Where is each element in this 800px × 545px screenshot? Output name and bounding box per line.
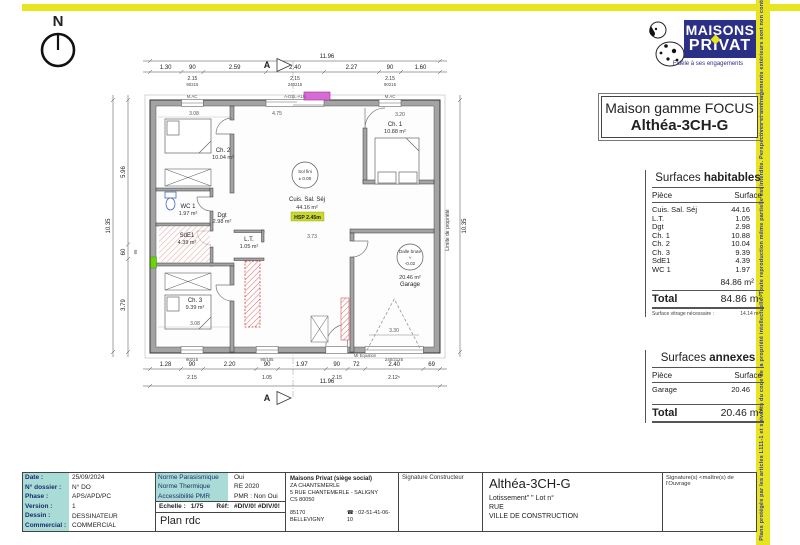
toilet-icon [165, 192, 176, 210]
annex-title: Surfaces annexes [652, 350, 764, 368]
info-row: Date :25/09/2024 [23, 473, 155, 483]
norm-row: Norme ThermiqueRE 2020 [156, 482, 285, 491]
signature-owner-cell: Signature(s) <maître(s) de l'Ouvrage [663, 473, 756, 531]
project-street: RUE [489, 503, 656, 512]
room-cuis-name: Cuis. Sal. Séj [289, 197, 325, 203]
svg-text:2.12⁵: 2.12⁵ [388, 375, 400, 381]
entry-cupboard [311, 316, 328, 342]
dim-bottom-total: 11.96 [320, 379, 335, 385]
svg-text:90215: 90215 [384, 82, 397, 87]
company-name: Maisons Privat (siège social) [290, 476, 394, 483]
room-lt-area: 1.05 m² [240, 244, 259, 250]
svg-text:69: 69 [428, 362, 435, 368]
room-sde1-area: 4.39 m² [178, 240, 197, 246]
north-compass: N [32, 10, 84, 74]
svg-text:1.97: 1.97 [296, 362, 308, 368]
technical-duct [341, 298, 349, 340]
svg-text:2.40: 2.40 [289, 65, 301, 71]
hab-total-row: Total 84.86 m² [652, 290, 764, 309]
svg-text:2.15: 2.15 [187, 375, 197, 381]
section-marker-bottom: A [264, 392, 291, 405]
bed-icon [165, 119, 211, 153]
svg-text:1.60: 1.60 [415, 65, 427, 71]
surfaces-annexes-table: Surfaces annexes PièceSurface Garage20.4… [645, 350, 764, 423]
info-row: Phase :APS/APD/PC [23, 492, 155, 502]
info-row: Dessin :DESSINATEUR [23, 511, 155, 521]
interior-dim: 3.08 [190, 321, 200, 327]
title-block: Date :25/09/2024 N° dossier :N° DO Phase… [22, 472, 757, 532]
svg-text:90: 90 [264, 362, 271, 368]
svg-text:-0.02: -0.02 [405, 261, 416, 266]
svg-text:A: A [264, 60, 271, 70]
room-dgt-area: 2.98 m² [213, 219, 232, 225]
logo-word-1: MAISONS [684, 22, 756, 38]
room-ch1-name: Ch. 1 [388, 122, 403, 128]
norm-row: Norme ParasismiqueOui [156, 473, 285, 482]
company-phone: ☎ : 02-51-41-06-10 [347, 510, 394, 524]
svg-text:Dalle brute: Dalle brute [399, 249, 422, 254]
interior-dim: 4.75 [272, 111, 282, 117]
hab-footnote: Surface vitrage nécessaire :14.14 m² [652, 309, 764, 317]
floor-plan-sheet: Plans protégés par les articles L111-1 e… [0, 0, 800, 545]
svg-text:Sol fini: Sol fini [298, 169, 312, 174]
hab-header: PièceSurface [652, 188, 764, 203]
room-garage-name: Garage [400, 282, 421, 288]
dim-top-total: 11.96 [320, 54, 335, 60]
interior-dim: 3.20 [395, 112, 405, 118]
wall-tag: M.AC [385, 94, 395, 99]
model-title-box: Maison gamme FOCUS Althéa-3CH-G [601, 96, 758, 138]
svg-text:1.28: 1.28 [160, 362, 172, 368]
company-addr: 5 RUE CHANTEMERLE - SALIGNY [290, 490, 394, 497]
annex-rows: Garage20.46 [652, 383, 764, 403]
svg-text:72: 72 [353, 362, 360, 368]
svg-text:240215: 240215 [288, 82, 303, 87]
room-ch1-area: 10.88 m² [384, 129, 406, 135]
svg-text:2.40: 2.40 [388, 362, 400, 368]
electrical-panel [151, 257, 157, 268]
svg-text:5.96: 5.96 [121, 166, 127, 178]
svg-text:1.30: 1.30 [160, 65, 172, 71]
svg-text:95: 95 [133, 249, 138, 254]
info-row: N° dossier :N° DO [23, 483, 155, 493]
slab-level-marker: Dalle brute ≈ -0.02 [397, 244, 423, 270]
svg-text:1.05: 1.05 [262, 375, 272, 381]
project-lot: Lotissement" " Lot n° [489, 494, 656, 503]
company-column: Maisons Privat (siège social) ZA CHANTEM… [286, 473, 399, 531]
signature-constructor-cell: Signature Constructeur [399, 473, 483, 531]
interior-dim: 3.08 [189, 111, 199, 117]
info-column: Date :25/09/2024 N° dossier :N° DO Phase… [23, 473, 156, 531]
svg-text:± 0.00: ± 0.00 [299, 176, 312, 181]
model-name: Althéa-3CH-G [602, 117, 757, 134]
section-marker-top: A [264, 59, 291, 72]
hab-title: Surfaces habitables [652, 170, 764, 188]
hab-rows: Cuis. Sal. Séj44.16 L.T.1.05 Dgt2.98 Ch.… [652, 203, 764, 274]
range-title: Maison gamme FOCUS [602, 100, 757, 116]
dim-left-total: 10.35 [106, 218, 112, 234]
room-wc1-name: WC 1 [181, 204, 197, 210]
svg-text:3.79: 3.79 [121, 299, 127, 311]
kitchen-counter [245, 261, 260, 327]
project-city: VILLE DE CONSTRUCTION [489, 512, 656, 521]
north-label: N [53, 13, 64, 30]
table-row: Garage20.46 [652, 386, 764, 395]
svg-text:A: A [264, 393, 271, 403]
room-wc1-area: 1.97 m² [179, 211, 198, 217]
dim-right-total: 10.35 [462, 218, 468, 234]
floor-plan-drawing: Ch. 2 10.04 m² WC 1 1.97 m² SdE1 4.39 m²… [95, 45, 515, 425]
company-addr: ZA CHANTEMERLE [290, 483, 394, 490]
dim-chain-left [111, 95, 130, 357]
plan-name: Plan rdc [156, 512, 285, 529]
info-row: Version :1 [23, 502, 155, 512]
interior-dim: 3.30 [389, 328, 399, 334]
svg-text:2.20: 2.20 [224, 362, 236, 368]
svg-text:90: 90 [189, 362, 196, 368]
table-row: WC 11.97 [652, 266, 764, 275]
svg-text:90: 90 [333, 362, 340, 368]
room-ch3-name: Ch. 3 [188, 298, 203, 304]
svg-text:90: 90 [189, 65, 196, 71]
hsp-label: HSP 2.45m [294, 215, 321, 221]
project-name: Althéa-3CH-G [489, 476, 656, 491]
company-city: 85170 BELLEVIGNY [290, 510, 339, 524]
company-addr: CS 80050 [290, 497, 394, 504]
room-ch3-area: 9.39 m² [186, 305, 205, 311]
project-column: Althéa-3CH-G Lotissement" " Lot n° RUE V… [483, 473, 663, 531]
logo-tagline: Fidèle à ses engagements [658, 61, 758, 67]
room-lt-name: L.T. [244, 237, 254, 243]
svg-text:90: 90 [387, 65, 394, 71]
svg-text:60: 60 [121, 248, 127, 255]
scale-row: Echelle :1/75 Réf:#DIV/0! #DIV/0! [156, 501, 285, 512]
svg-text:2.27: 2.27 [346, 65, 358, 71]
closet-icon [165, 169, 211, 186]
norm-row: Accessibilité PMRPMR : Non Oui [156, 492, 285, 501]
svg-text:90215: 90215 [186, 82, 199, 87]
vmc-unit [304, 92, 330, 100]
info-row: Commercial :COMMERCIAL [23, 521, 155, 531]
hab-subtotal: 84.86 m² [652, 274, 764, 289]
closet-icon [165, 273, 211, 290]
interior-dim: 3.73 [307, 234, 317, 240]
room-ch2-area: 10.04 m² [212, 155, 234, 161]
top-yellow-bar [22, 4, 800, 11]
bed-icon [375, 138, 419, 184]
room-garage-area: 20.46 m² [399, 275, 421, 281]
room-sde1-name: SdE1 [180, 233, 195, 239]
wall-tag: MI Equation [354, 353, 377, 358]
annex-header: PièceSurface [652, 368, 764, 383]
room-cuis-area: 44.16 m² [296, 205, 318, 211]
floor-level-marker: Sol fini ± 0.00 [292, 162, 318, 188]
wall-tag: A-DSL-ALU [284, 94, 306, 99]
property-limit-label: Limite de propriété [445, 209, 451, 251]
room-ch2-name: Ch. 2 [216, 148, 231, 154]
svg-text:2.59: 2.59 [229, 65, 241, 71]
norm-column: Norme ParasismiqueOui Norme ThermiqueRE … [156, 473, 286, 531]
wall-tag: M.AC [187, 94, 197, 99]
annex-total-row: Total 20.46 m² [652, 404, 764, 423]
surfaces-habitables-table: Surfaces habitables PièceSurface Cuis. S… [645, 170, 764, 317]
